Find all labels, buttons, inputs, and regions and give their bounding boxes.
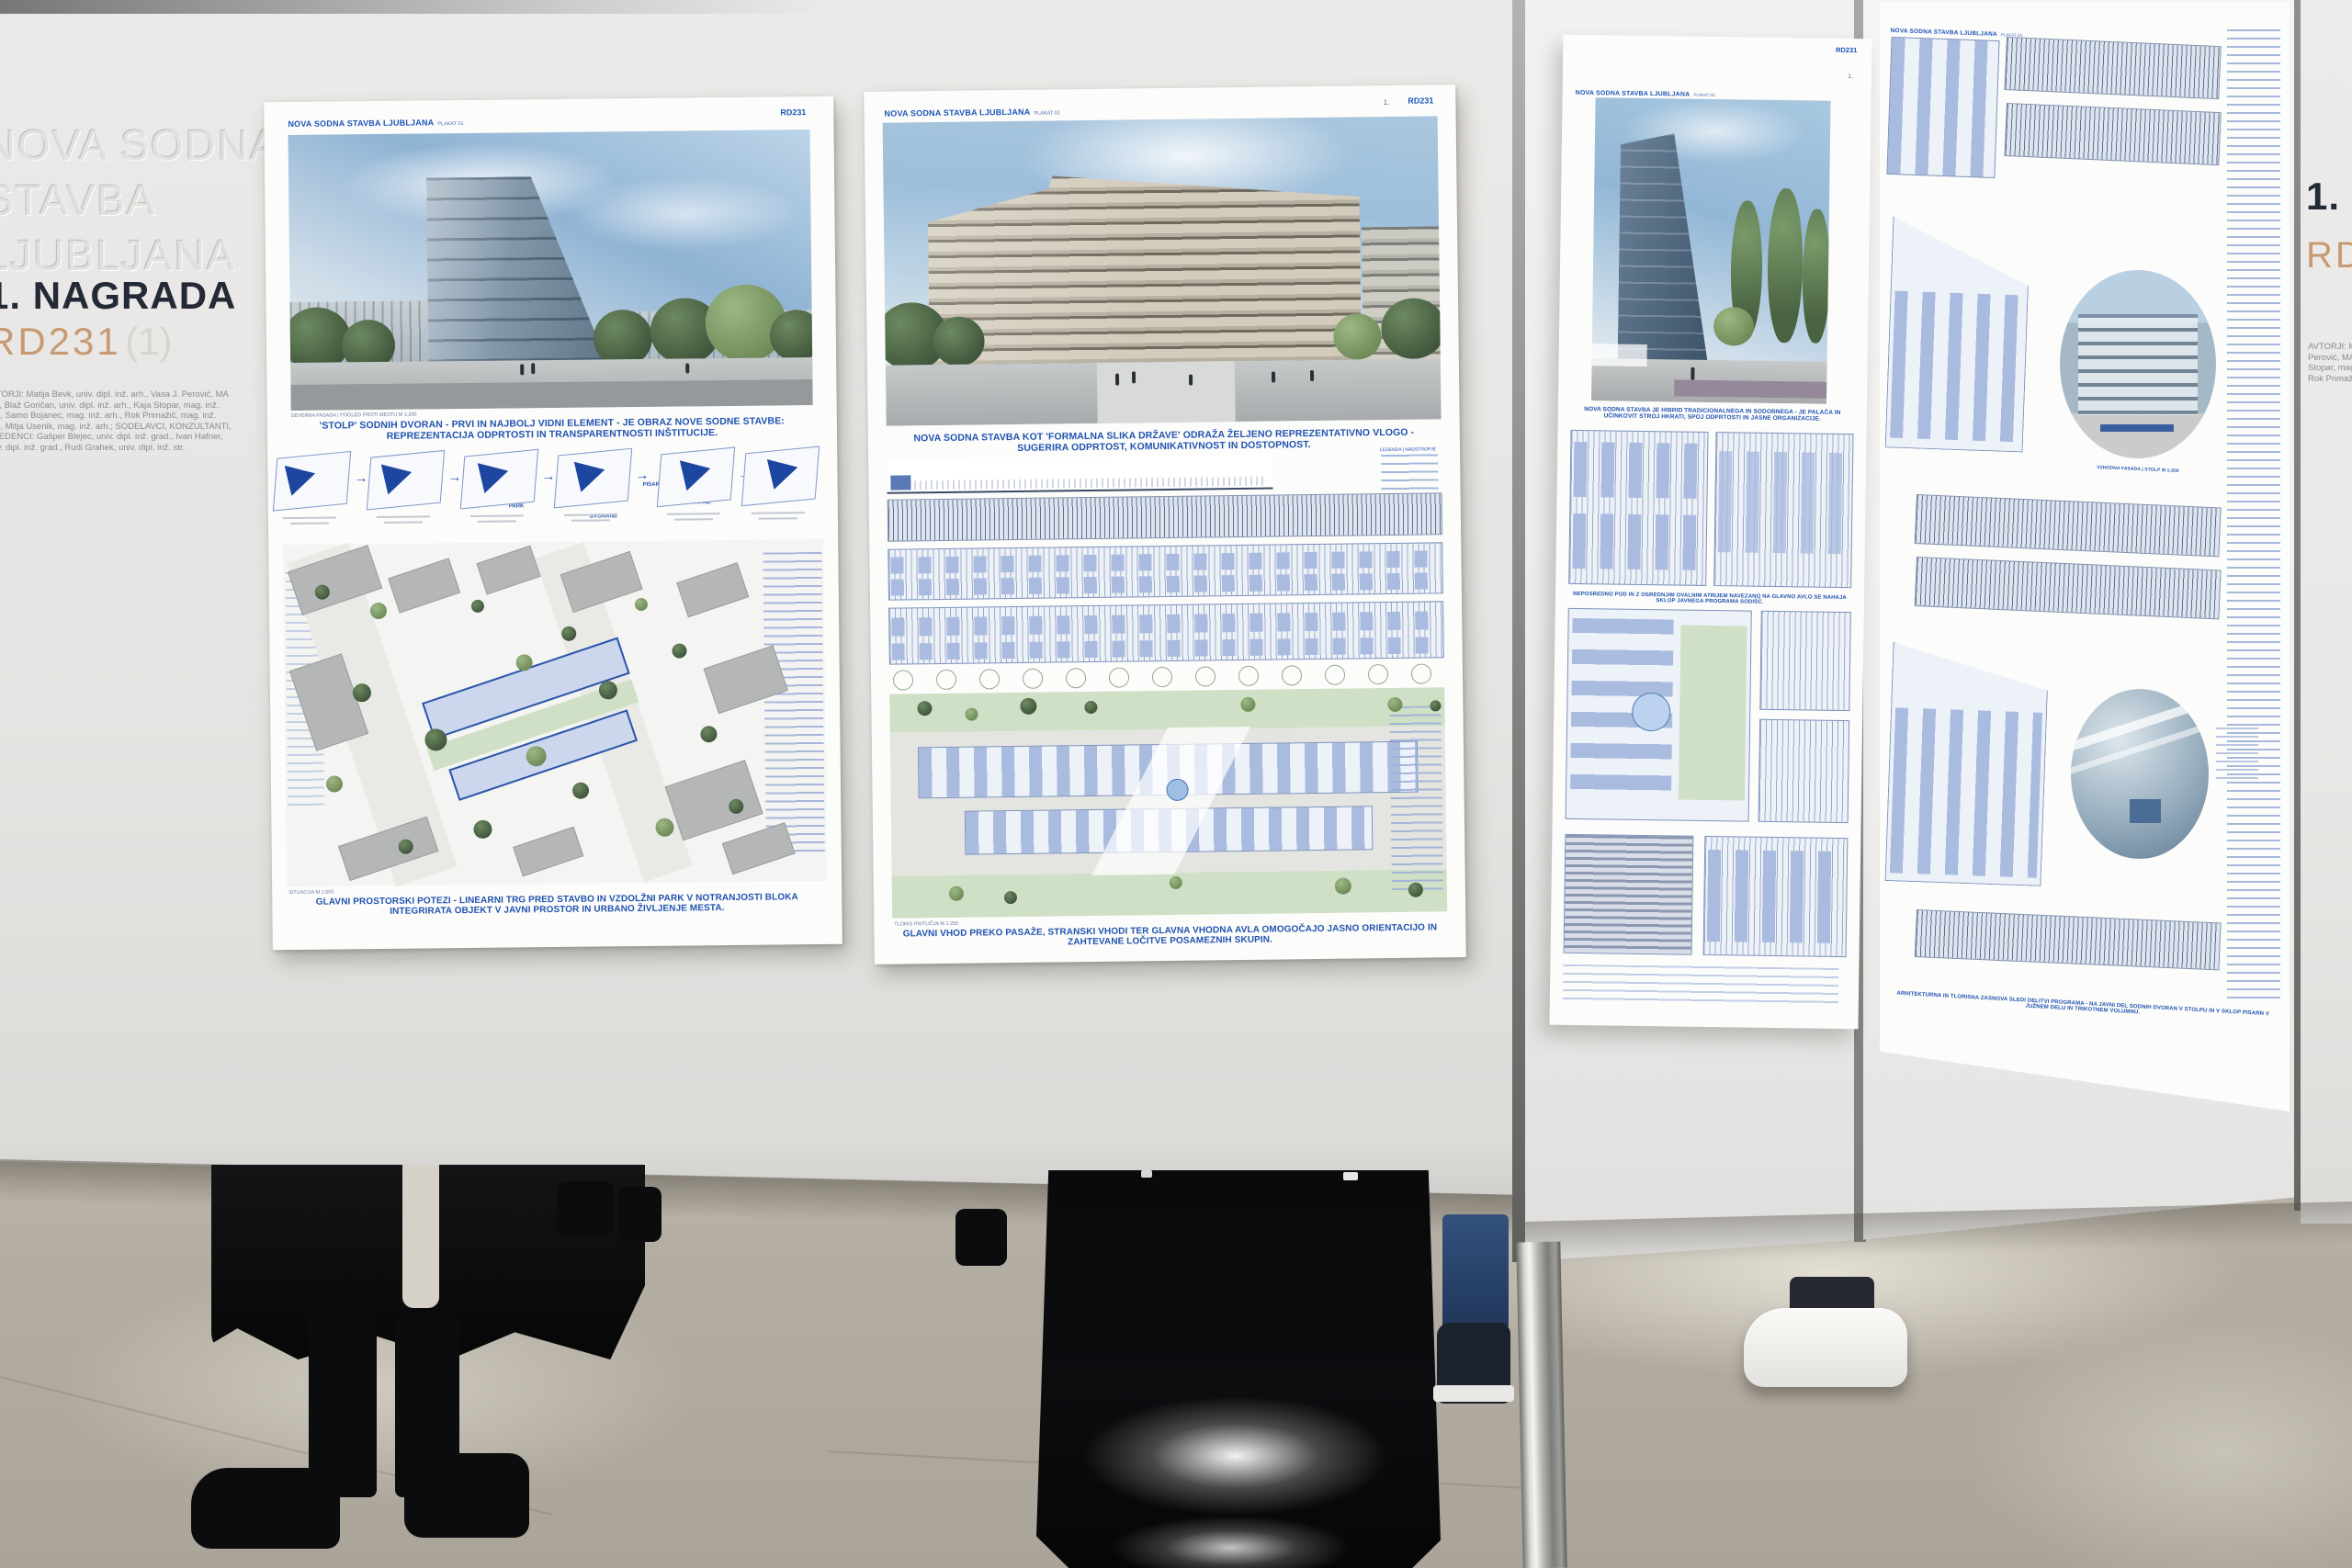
credits-partial: AVTORJI: Matija Bevk, univ. dipl. inž. a… <box>2308 342 2352 384</box>
tree <box>399 840 413 854</box>
plan-strip <box>1915 909 2222 970</box>
tree <box>917 701 932 716</box>
person-speck <box>531 363 535 374</box>
courtyard <box>1679 626 1747 801</box>
tree <box>1084 701 1097 714</box>
plan-rooms <box>1890 707 2042 877</box>
diagram-cell <box>367 450 445 511</box>
board2-code: RD231 <box>1408 96 1433 105</box>
tree <box>1387 697 1402 712</box>
diagram-text-bar <box>759 517 797 519</box>
plan-strip <box>1915 557 2222 619</box>
plan-annotations <box>1563 964 1839 1005</box>
floor-plan-strip <box>888 542 1443 600</box>
board1-title: NOVA SODNA STAVBA LJUBLJANA <box>288 118 434 129</box>
tree <box>1170 876 1182 889</box>
tree <box>473 820 492 839</box>
tree <box>1335 878 1351 895</box>
white-sneaker <box>1744 1308 1907 1387</box>
context-building <box>722 822 796 874</box>
diagram-cell <box>657 447 735 508</box>
plan-rooms <box>1718 451 1849 554</box>
credits: AVTORJI: Matija Bevk, univ. dipl. inž. a… <box>0 389 232 453</box>
plan-strip <box>2004 37 2221 99</box>
board3-code: RD231 <box>1836 46 1857 54</box>
base-highlight <box>1084 1396 1387 1516</box>
tree <box>1713 307 1755 346</box>
board2-number: 1. <box>1384 98 1390 107</box>
arrow-right-icon: → <box>635 468 651 484</box>
board2-title: NOVA SODNA STAVBA LJUBLJANA <box>884 107 1030 118</box>
board3-title: NOVA SODNA STAVBA LJUBLJANA <box>1576 90 1690 98</box>
person-speck <box>1115 374 1119 386</box>
plan-annotations <box>763 552 824 856</box>
court-tower <box>1618 133 1724 367</box>
triangular-plan <box>1885 216 2031 452</box>
plan-rooms <box>1574 442 1703 499</box>
tree-circle <box>1282 665 1302 685</box>
board2-caption-2: GLAVNI VHOD PREKO PASAŽE, STRANSKI VHODI… <box>901 922 1438 949</box>
small-plan <box>1758 719 1850 823</box>
context-building <box>388 558 460 613</box>
competition-board-3: RD231 1. NOVA SODNA STAVBA LJUBLJANAPLAK… <box>1549 35 1871 1030</box>
tree-circle <box>1325 665 1345 685</box>
tree-circle <box>1023 669 1043 689</box>
floor-plan <box>1703 836 1849 957</box>
elevation-drawing <box>887 455 1272 494</box>
diagram-label: PARK <box>509 503 525 509</box>
tag <box>1141 1170 1152 1178</box>
facade-stripes <box>2078 314 2198 415</box>
diagram-text-bar <box>384 521 423 523</box>
green-band <box>892 869 1448 918</box>
tree <box>1381 298 1442 359</box>
visitor-jeans-leg <box>1442 1214 1509 1330</box>
visitor-shoe <box>617 1187 661 1242</box>
tree <box>1430 700 1441 711</box>
long-facade-drawing <box>888 492 1443 541</box>
board2-legend-label: LEGENDA | NADSTROPJE <box>1380 446 1436 453</box>
tree-circle <box>1109 667 1129 687</box>
visitor-shoe <box>955 1209 1007 1266</box>
ceiling-edge <box>0 0 827 14</box>
tree-circle <box>893 670 913 690</box>
board3-number: 1. <box>1848 73 1853 80</box>
entry-code-row: RD231 (1) <box>0 320 173 364</box>
building-shine <box>927 172 1361 366</box>
tower-facade-photo-circle <box>2060 270 2216 458</box>
plan-rooms <box>891 611 1441 636</box>
tree <box>471 600 484 613</box>
diagram-cell <box>460 449 538 510</box>
person-speck <box>685 363 689 373</box>
board4-caption: ARHITEKTURNA IN TLORISNA ZASNOVA SLEDI D… <box>1894 991 2271 1023</box>
competition-board-2: NOVA SODNA STAVBA LJUBLJANAPLAKAT 02 1. … <box>864 85 1466 964</box>
elevation-strip <box>914 477 1263 491</box>
board1-caption-2: GLAVNI PROSTORSKI POTEZI - LINEARNI TRG … <box>300 892 814 918</box>
award-title: 1. NAGRADA <box>0 274 236 318</box>
diagram-text-bar <box>571 519 610 521</box>
poplar-tree <box>1767 188 1804 344</box>
diagram-text-bar <box>674 518 713 520</box>
floor-plan <box>1568 430 1708 586</box>
flower-bed <box>1674 379 1826 398</box>
poplar-tree <box>1802 209 1831 343</box>
road <box>290 379 812 411</box>
context-building <box>676 562 749 617</box>
coat-gap <box>402 1165 439 1308</box>
tree <box>515 654 532 671</box>
tree <box>599 681 617 699</box>
legend-lines <box>1381 454 1438 491</box>
diagram-text-bar <box>752 512 805 514</box>
person-speck <box>1132 371 1136 383</box>
plan-annotations <box>1389 705 1442 890</box>
tree-circle <box>979 669 1000 689</box>
diagram-cell <box>741 446 820 507</box>
ground-floor-plan <box>889 687 1447 918</box>
entry-code-partial: RD231 <box>2306 235 2352 276</box>
plan-rooms <box>890 550 1440 573</box>
context-building <box>476 546 540 595</box>
entry-code-suffix: (1) <box>125 320 172 363</box>
large-floor-plan <box>1566 608 1752 822</box>
tree <box>655 818 673 837</box>
board1-rendering <box>288 130 813 411</box>
plan-rooms <box>1890 291 2023 443</box>
tree-circle <box>1152 667 1172 687</box>
tree <box>353 683 371 702</box>
glass-canopy <box>1592 344 1647 367</box>
person-speck <box>1272 372 1275 383</box>
board2-header: NOVA SODNA STAVBA LJUBLJANAPLAKAT 02 <box>884 102 1059 120</box>
board2-plan-label: TLORIS PRITLIČJA M 1:250 <box>894 921 958 928</box>
person-speck <box>520 364 524 375</box>
tree <box>1408 883 1423 897</box>
annotation-column <box>2227 29 2280 1003</box>
concept-diagram-row: PARK DVORANE PISARNE DVORANE →→→→→ <box>267 444 838 537</box>
interior-furniture <box>2130 799 2161 823</box>
tree <box>672 643 686 658</box>
board1-code: RD231 <box>780 107 806 117</box>
tree <box>700 726 717 742</box>
board3-caption-1: NOVA SODNA STAVBA JE HIBRID TRADICIONALN… <box>1567 406 1858 423</box>
tree-circle <box>1368 664 1388 684</box>
elevation-block <box>890 475 910 490</box>
plan-rooms <box>1707 850 1844 943</box>
tree-circle <box>1195 666 1216 686</box>
tree-circle <box>1411 663 1431 683</box>
board1-subtitle: PLAKAT 01 <box>437 121 463 127</box>
tree-row <box>893 663 1444 690</box>
visitor-shoe <box>191 1468 340 1549</box>
context-building <box>513 827 583 877</box>
plan-rooms <box>891 572 1441 595</box>
diagram-cell <box>554 448 632 509</box>
floor-plan <box>1886 37 1999 178</box>
interior-photo-circle <box>2071 689 2209 859</box>
diagram-wedge <box>282 463 316 497</box>
diagram-text-bar <box>478 520 516 522</box>
plan-strip <box>1915 494 2222 557</box>
tree <box>729 799 743 814</box>
tree <box>526 746 547 766</box>
diagram-text-bar <box>667 513 720 515</box>
plan-rooms <box>892 637 1442 660</box>
board4-title: NOVA SODNA STAVBA LJUBLJANA <box>1890 28 1996 38</box>
tree <box>370 603 387 619</box>
tree <box>949 886 964 901</box>
photo-annotations <box>2216 728 2258 783</box>
person-speck <box>1189 375 1193 386</box>
section-drawing <box>1564 834 1694 955</box>
entry-code: RD231 <box>0 320 121 363</box>
exhibition-wall-right-c: 1. NAGRADA RD231 AVTORJI: Matija Bevk, u… <box>2301 0 2352 1224</box>
person-speck <box>1690 367 1694 380</box>
exhibition-photo: 1. NAGRADA RD231 AVTORJI: Matija Bevk, u… <box>0 0 2352 1568</box>
tree <box>1004 891 1017 904</box>
board2-subtitle: PLAKAT 02 <box>1034 110 1059 116</box>
diagram-text-bar <box>283 516 336 519</box>
tag <box>1343 1172 1358 1180</box>
diagram-text-bar <box>470 514 524 517</box>
chrome-support-pole <box>1516 1242 1566 1568</box>
board4-circle-label: VZHODNA FASADA | STOLP M 1:200 <box>2041 462 2234 476</box>
diagram-cell <box>273 451 351 512</box>
tree <box>572 783 589 799</box>
diagram-wedge <box>677 457 711 491</box>
board1-image-label: SEVERNA FASADA | POGLED PROTI MESTU M 1:… <box>291 412 417 419</box>
building-base <box>2100 424 2174 432</box>
floor-plan-strip <box>888 601 1444 664</box>
tree <box>315 585 330 600</box>
board1-caption-1: 'STOLP' SODNIH DVORAN - PRVI IN NAJBOLJ … <box>295 415 809 443</box>
ceiling-streak <box>2071 690 2209 752</box>
diagram-wedge <box>475 460 509 494</box>
board3-subtitle: PLAKAT 03 <box>1693 93 1714 97</box>
board1-site-label: SITUACIJA M 1:500 <box>288 890 334 897</box>
tree <box>965 708 978 721</box>
tree <box>561 626 576 641</box>
board2-caption-1: NOVA SODNA STAVBA KOT 'FORMALNA SLIKA DR… <box>896 426 1432 455</box>
tree-circle <box>1066 668 1086 688</box>
tree-circle <box>936 670 956 690</box>
person-speck <box>1310 370 1314 381</box>
tree <box>326 775 343 792</box>
board1-header: NOVA SODNA STAVBA LJUBLJANAPLAKAT 01 <box>288 113 463 131</box>
competition-board-4: NOVA SODNA STAVBA LJUBLJANAPLAKAT 04 VZH… <box>1880 2 2290 1111</box>
plan-rooms <box>1572 513 1702 570</box>
visitor-shoe <box>404 1453 529 1538</box>
diagram-text-bar <box>377 515 430 518</box>
diagram-wedge <box>571 458 605 492</box>
sneaker-sole <box>1433 1385 1514 1402</box>
plan-strip <box>2004 103 2221 165</box>
board3-caption-2: NEPOSREDNO POD IN Z OSREDNJIM OVALNIM AT… <box>1565 592 1855 606</box>
plaza-path <box>1097 361 1236 423</box>
triangular-plan <box>1885 642 2050 886</box>
diagram-wedge <box>379 461 413 495</box>
diagram-text-bar <box>290 523 329 525</box>
context-building <box>665 760 763 840</box>
award-title-partial: 1. NAGRADA <box>2306 175 2352 219</box>
small-plan <box>1759 611 1850 711</box>
fountain <box>1166 779 1188 801</box>
board2-rendering <box>883 116 1442 425</box>
diagram-wedge <box>764 457 798 491</box>
site-plan <box>283 539 827 886</box>
tree <box>424 728 447 750</box>
board3-rendering <box>1591 97 1831 404</box>
tree <box>635 598 648 611</box>
floor-plan <box>1713 432 1853 588</box>
tree <box>1240 697 1255 712</box>
tree <box>1020 698 1036 715</box>
tree-circle <box>1238 666 1259 686</box>
visitor-shoe <box>557 1181 614 1235</box>
competition-board-1: NOVA SODNA STAVBA LJUBLJANAPLAKAT 01 RD2… <box>264 96 842 950</box>
